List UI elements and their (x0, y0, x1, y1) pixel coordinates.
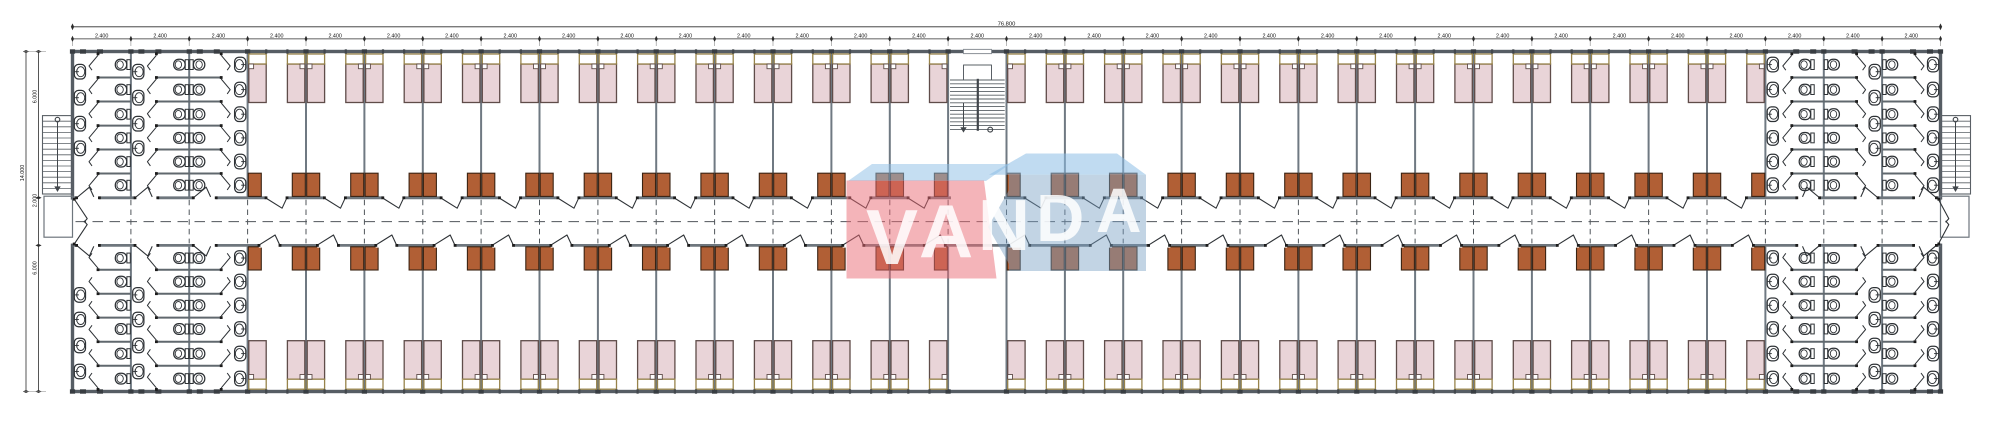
svg-text:2.400: 2.400 (795, 33, 809, 39)
svg-text:2.400: 2.400 (328, 33, 342, 39)
svg-text:2.400: 2.400 (1087, 33, 1101, 39)
svg-text:76.800: 76.800 (998, 21, 1016, 27)
svg-text:2.400: 2.400 (1438, 33, 1452, 39)
svg-text:A: A (919, 189, 973, 273)
svg-text:V: V (866, 193, 918, 281)
svg-text:N: N (978, 186, 1030, 266)
svg-text:2.400: 2.400 (562, 33, 576, 39)
svg-text:2.400: 2.400 (620, 33, 634, 39)
svg-text:2.400: 2.400 (387, 33, 401, 39)
svg-text:2.400: 2.400 (1204, 33, 1218, 39)
svg-text:2.400: 2.400 (270, 33, 284, 39)
svg-text:A: A (1096, 176, 1142, 246)
svg-text:2.400: 2.400 (1788, 33, 1802, 39)
svg-text:2.400: 2.400 (1321, 33, 1335, 39)
svg-text:2.400: 2.400 (679, 33, 693, 39)
svg-text:2.400: 2.400 (1379, 33, 1393, 39)
svg-text:2.400: 2.400 (1496, 33, 1510, 39)
svg-text:6.000: 6.000 (33, 261, 39, 275)
svg-text:2.400: 2.400 (1029, 33, 1043, 39)
svg-text:2.400: 2.400 (153, 33, 167, 39)
svg-text:2.400: 2.400 (1729, 33, 1743, 39)
svg-text:2.400: 2.400 (504, 33, 518, 39)
svg-text:2.400: 2.400 (1146, 33, 1160, 39)
svg-text:2.400: 2.400 (212, 33, 226, 39)
svg-text:2.400: 2.400 (912, 33, 926, 39)
svg-text:2.400: 2.400 (445, 33, 459, 39)
svg-text:2.400: 2.400 (1905, 33, 1919, 39)
svg-text:2.400: 2.400 (1262, 33, 1276, 39)
svg-text:2.400: 2.400 (1613, 33, 1627, 39)
svg-text:2.400: 2.400 (1671, 33, 1685, 39)
svg-text:6.000: 6.000 (33, 90, 39, 104)
svg-text:2.400: 2.400 (1846, 33, 1860, 39)
svg-text:2.000: 2.000 (33, 194, 39, 208)
svg-text:2.400: 2.400 (854, 33, 868, 39)
svg-text:D: D (1036, 181, 1084, 256)
svg-text:2.400: 2.400 (1554, 33, 1568, 39)
svg-text:2.400: 2.400 (971, 33, 985, 39)
svg-text:2.400: 2.400 (737, 33, 751, 39)
svg-text:14.000: 14.000 (20, 165, 26, 182)
svg-text:2.400: 2.400 (95, 33, 109, 39)
